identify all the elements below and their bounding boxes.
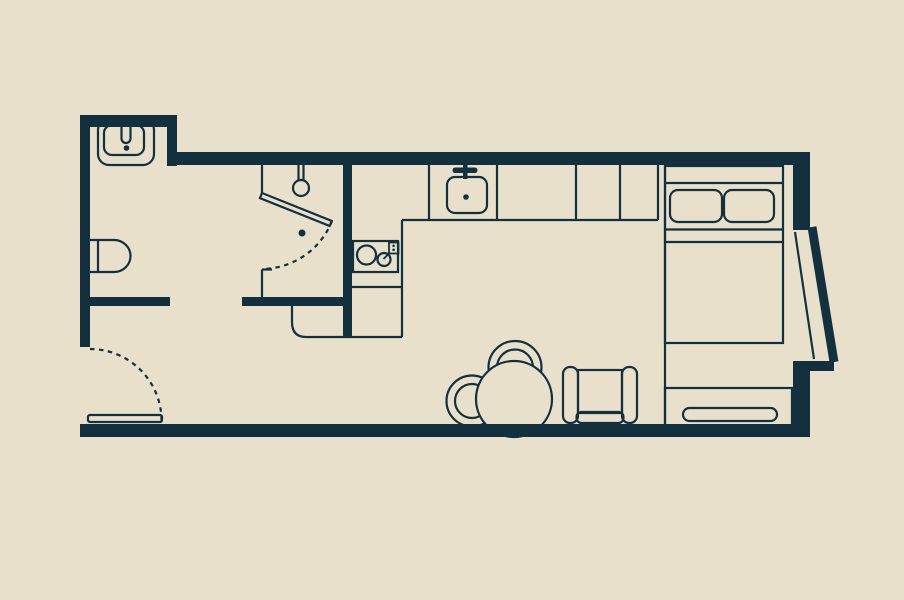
armchair <box>563 367 637 423</box>
double-bed <box>665 166 783 343</box>
entry-door <box>88 349 162 422</box>
angled-window <box>795 232 814 359</box>
shower-drain <box>299 230 306 237</box>
pillow-right <box>724 190 774 222</box>
shower-pivot-door <box>260 165 332 297</box>
floor-plan-drawing <box>0 0 904 600</box>
media-cabinet <box>665 388 792 426</box>
floor-plan-page <box>0 0 904 600</box>
kitchen-sink <box>447 158 487 213</box>
toilet <box>88 240 131 272</box>
cooktop <box>353 241 399 272</box>
pillow-left <box>670 190 722 222</box>
